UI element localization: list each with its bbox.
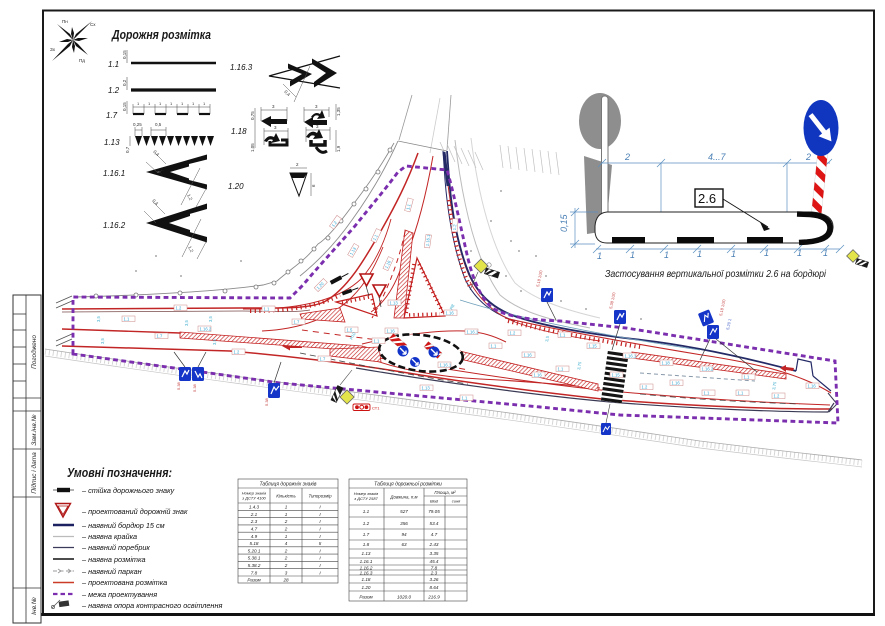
svg-text:Погоджено: Погоджено xyxy=(30,335,38,369)
svg-text:1.1: 1.1 xyxy=(744,375,750,380)
svg-text:1.2: 1.2 xyxy=(642,385,648,390)
svg-text:3.26: 3.26 xyxy=(430,577,439,582)
svg-text:3: 3 xyxy=(285,570,288,575)
svg-text:1.16: 1.16 xyxy=(534,373,543,378)
svg-text:з ДСТУ 2587: з ДСТУ 2587 xyxy=(353,496,378,501)
svg-text:1.2: 1.2 xyxy=(452,224,458,231)
svg-text:Вlad: Вlad xyxy=(430,499,439,504)
svg-text:– наявний поребрик: – наявний поребрик xyxy=(81,543,150,552)
svg-text:94: 94 xyxy=(401,532,407,537)
svg-text:1.2: 1.2 xyxy=(510,331,516,336)
svg-text:1.20: 1.20 xyxy=(362,585,371,590)
svg-text:1.18: 1.18 xyxy=(662,361,671,366)
svg-text:1.13: 1.13 xyxy=(422,386,431,391)
svg-text:1: 1 xyxy=(731,249,736,259)
svg-text:2: 2 xyxy=(284,519,288,524)
svg-text:1.13: 1.13 xyxy=(390,301,399,306)
svg-text:1: 1 xyxy=(285,512,288,517)
svg-text:1.1: 1.1 xyxy=(462,396,468,401)
svg-text:3,5: 3,5 xyxy=(100,338,105,344)
svg-text:1.1: 1.1 xyxy=(374,339,380,344)
svg-text:1: 1 xyxy=(285,505,288,510)
svg-text:1.16: 1.16 xyxy=(524,353,533,358)
svg-text:0,7: 0,7 xyxy=(125,146,130,153)
svg-text:1.16: 1.16 xyxy=(387,329,396,334)
svg-text:5.38: 5.38 xyxy=(264,397,269,406)
svg-text:0,15: 0,15 xyxy=(122,102,127,111)
svg-text:Таблиця дорожніх знаків: Таблиця дорожніх знаків xyxy=(259,482,316,488)
svg-text:1.16.1: 1.16.1 xyxy=(467,330,479,335)
svg-text:2.1: 2.1 xyxy=(250,512,258,517)
svg-text:– наявна крайка: – наявна крайка xyxy=(81,532,137,541)
svg-text:Довжина, п.м: Довжина, п.м xyxy=(389,495,417,500)
svg-text:1.16.3: 1.16.3 xyxy=(360,571,373,576)
svg-text:28: 28 xyxy=(282,577,289,582)
svg-text:– наявний паркан: – наявний паркан xyxy=(81,567,142,576)
svg-text:2.6: 2.6 xyxy=(698,191,716,206)
svg-text:1,05: 1,05 xyxy=(250,143,255,152)
svg-text:Сх: Сх xyxy=(90,22,96,27)
svg-text:4...7: 4...7 xyxy=(708,152,727,162)
svg-text:2.3: 2.3 xyxy=(430,571,438,576)
svg-text:1.1: 1.1 xyxy=(491,344,497,349)
svg-text:1.16.1: 1.16.1 xyxy=(440,363,452,368)
svg-text:1.18: 1.18 xyxy=(362,577,371,582)
svg-text:1.7: 1.7 xyxy=(294,320,300,325)
svg-text:356: 356 xyxy=(400,521,408,526)
svg-text:1: 1 xyxy=(823,248,828,258)
svg-text:– проектована розмітка: – проектована розмітка xyxy=(81,578,167,587)
svg-text:1: 1 xyxy=(630,250,635,260)
svg-text:5.18: 5.18 xyxy=(250,541,259,546)
svg-text:Застосування вертикальної розм: Застосування вертикальної розмітки 2.6 н… xyxy=(605,268,827,280)
svg-text:0,15: 0,15 xyxy=(122,50,127,59)
svg-text:4.7: 4.7 xyxy=(431,532,438,537)
svg-text:3,5: 3,5 xyxy=(96,316,101,322)
svg-text:1.2: 1.2 xyxy=(774,394,780,399)
svg-text:1.16: 1.16 xyxy=(446,311,455,316)
svg-text:1.1: 1.1 xyxy=(704,391,710,396)
svg-text:СТ1: СТ1 xyxy=(372,406,380,411)
svg-text:1.1: 1.1 xyxy=(108,60,119,69)
svg-text:2: 2 xyxy=(284,527,288,532)
svg-text:1.2: 1.2 xyxy=(234,350,240,355)
svg-text:– наявний бордюр 15 см: – наявний бордюр 15 см xyxy=(81,521,165,530)
svg-text:Разом: Разом xyxy=(247,577,261,582)
svg-text:Разом: Разом xyxy=(359,595,373,600)
svg-text:527: 527 xyxy=(400,509,408,514)
svg-text:– проектований дорожній знак: – проектований дорожній знак xyxy=(81,507,188,516)
svg-text:63: 63 xyxy=(401,542,407,547)
svg-text:1.2: 1.2 xyxy=(176,306,182,311)
svg-text:1.16.1: 1.16.1 xyxy=(625,354,637,359)
svg-text:2: 2 xyxy=(805,152,811,162)
svg-text:1.20: 1.20 xyxy=(228,182,244,191)
svg-text:1.18: 1.18 xyxy=(231,127,247,136)
svg-text:1.1: 1.1 xyxy=(124,317,130,322)
svg-text:2.3: 2.3 xyxy=(250,519,258,524)
svg-text:синя: синя xyxy=(452,499,461,504)
svg-text:5.38.1: 5.38.1 xyxy=(248,556,261,561)
svg-text:1.16.3: 1.16.3 xyxy=(230,63,253,72)
svg-text:1: 1 xyxy=(697,249,702,259)
svg-text:Умовні позначення:: Умовні позначення: xyxy=(67,465,172,480)
svg-text:1.1: 1.1 xyxy=(738,391,744,396)
svg-text:1.7: 1.7 xyxy=(363,532,370,537)
svg-text:– стійка дорожнього знаку: – стійка дорожнього знаку xyxy=(81,486,176,495)
svg-text:1.13: 1.13 xyxy=(104,138,120,147)
svg-text:1: 1 xyxy=(597,251,602,261)
svg-text:79.05: 79.05 xyxy=(428,509,440,514)
svg-text:Таблиця дорожньої розмітки: Таблиця дорожньої розмітки xyxy=(374,482,442,488)
svg-text:0,25: 0,25 xyxy=(133,122,142,127)
svg-text:5.38.2: 5.38.2 xyxy=(248,563,261,568)
svg-text:1: 1 xyxy=(664,250,669,260)
svg-text:1,35: 1,35 xyxy=(336,107,341,116)
svg-text:2: 2 xyxy=(284,556,288,561)
svg-text:1: 1 xyxy=(797,248,802,258)
svg-text:4: 4 xyxy=(285,541,288,546)
svg-text:Інв.№: Інв.№ xyxy=(31,597,38,615)
svg-text:53.4: 53.4 xyxy=(430,521,439,526)
svg-text:0,5: 0,5 xyxy=(155,122,162,127)
svg-text:1,9: 1,9 xyxy=(336,145,341,152)
svg-text:Типорозмір: Типорозмір xyxy=(308,494,332,499)
svg-text:1.7: 1.7 xyxy=(320,357,326,362)
svg-text:216.9: 216.9 xyxy=(427,595,440,600)
svg-text:1020.0: 1020.0 xyxy=(397,595,411,600)
svg-text:Зх: Зх xyxy=(50,47,56,52)
svg-text:1.16.2: 1.16.2 xyxy=(200,327,212,332)
svg-text:1.1: 1.1 xyxy=(558,367,564,372)
svg-text:1: 1 xyxy=(285,534,288,539)
svg-text:1.15: 1.15 xyxy=(589,344,598,349)
svg-text:1.1: 1.1 xyxy=(560,333,566,338)
svg-text:3,5: 3,5 xyxy=(184,320,189,326)
svg-text:5.20.1: 5.20.1 xyxy=(248,548,261,553)
svg-text:4.7: 4.7 xyxy=(251,527,258,532)
svg-text:– наявна розмітка: – наявна розмітка xyxy=(81,555,146,564)
svg-text:– наявна опора контрасного ос: – наявна опора контрасного освітлення xyxy=(81,601,222,610)
svg-text:3,5: 3,5 xyxy=(208,316,213,322)
svg-text:1.16: 1.16 xyxy=(808,384,817,389)
svg-text:1.1: 1.1 xyxy=(363,509,370,514)
svg-text:1.15: 1.15 xyxy=(612,373,621,378)
svg-text:Пд: Пд xyxy=(79,58,85,63)
svg-text:4.9: 4.9 xyxy=(251,534,258,539)
svg-text:5.38: 5.38 xyxy=(176,381,181,390)
svg-text:1.7: 1.7 xyxy=(106,111,118,120)
svg-text:Підпис і дата: Підпис і дата xyxy=(30,452,38,494)
svg-text:1.16: 1.16 xyxy=(672,381,681,386)
svg-text:Дорожня розмітка: Дорожня розмітка xyxy=(111,28,211,42)
svg-text:Зам.інв.№: Зам.інв.№ xyxy=(30,414,38,445)
svg-text:1.13: 1.13 xyxy=(362,551,371,556)
svg-text:Пн: Пн xyxy=(62,19,68,24)
svg-text:45.4: 45.4 xyxy=(430,559,439,564)
svg-text:– межа проектування: – межа проектування xyxy=(81,590,157,599)
svg-text:1.4.3: 1.4.3 xyxy=(249,505,260,510)
svg-text:1.8: 1.8 xyxy=(363,542,370,547)
svg-text:5.38: 5.38 xyxy=(192,383,197,392)
svg-text:7.8: 7.8 xyxy=(251,570,258,575)
svg-text:1.2: 1.2 xyxy=(108,86,120,95)
svg-text:0,75: 0,75 xyxy=(250,111,255,120)
svg-text:1.16.2: 1.16.2 xyxy=(103,221,126,230)
svg-text:1.16.1: 1.16.1 xyxy=(103,169,125,178)
svg-text:1.16.2: 1.16.2 xyxy=(702,367,714,372)
svg-text:3,5: 3,5 xyxy=(212,339,217,345)
svg-text:Площа, м²: Площа, м² xyxy=(434,490,456,495)
svg-text:1.7: 1.7 xyxy=(157,334,163,339)
svg-text:2: 2 xyxy=(284,563,288,568)
svg-text:1.1: 1.1 xyxy=(264,307,270,312)
svg-text:0,2: 0,2 xyxy=(122,79,127,86)
svg-text:2.43: 2.43 xyxy=(429,542,439,547)
svg-text:8.64: 8.64 xyxy=(430,585,439,590)
svg-text:3.35: 3.35 xyxy=(430,551,439,556)
svg-text:1.2: 1.2 xyxy=(363,521,370,526)
svg-text:0,15: 0,15 xyxy=(559,213,569,232)
svg-text:2: 2 xyxy=(284,548,288,553)
svg-text:1: 1 xyxy=(764,248,769,258)
svg-text:2: 2 xyxy=(624,152,630,162)
svg-text:Кількість: Кількість xyxy=(276,494,296,499)
svg-text:з ДСТУ 4100: з ДСТУ 4100 xyxy=(241,496,266,501)
svg-text:1.16.1: 1.16.1 xyxy=(360,559,373,564)
